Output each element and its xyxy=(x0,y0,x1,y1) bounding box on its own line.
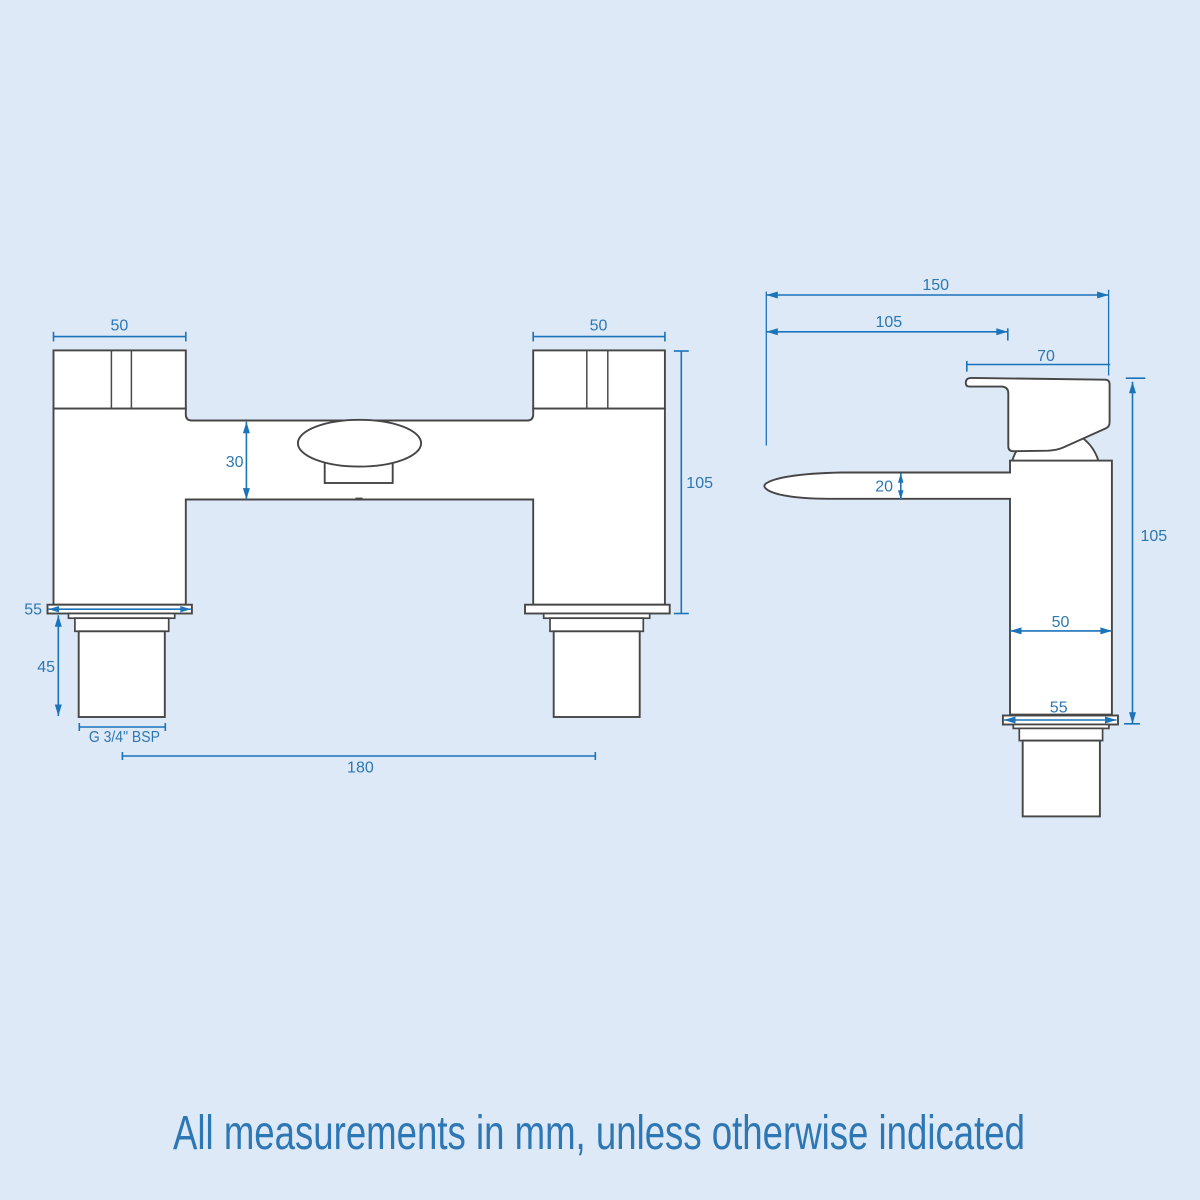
svg-text:150: 150 xyxy=(922,277,949,294)
svg-text:50: 50 xyxy=(111,318,129,335)
svg-text:45: 45 xyxy=(37,659,55,676)
svg-text:50: 50 xyxy=(1052,614,1070,631)
svg-text:105: 105 xyxy=(686,475,713,492)
svg-text:105: 105 xyxy=(1141,528,1168,545)
svg-text:G 3/4" BSP: G 3/4" BSP xyxy=(89,729,160,746)
svg-text:20: 20 xyxy=(875,479,893,496)
svg-text:All measurements in mm, unless: All measurements in mm, unless otherwise… xyxy=(173,1107,1025,1160)
svg-text:70: 70 xyxy=(1037,348,1055,365)
svg-text:50: 50 xyxy=(590,318,608,335)
svg-text:180: 180 xyxy=(347,759,374,776)
svg-text:105: 105 xyxy=(875,314,902,331)
svg-text:30: 30 xyxy=(226,454,244,471)
svg-text:55: 55 xyxy=(1050,699,1068,716)
svg-text:55: 55 xyxy=(24,601,42,618)
